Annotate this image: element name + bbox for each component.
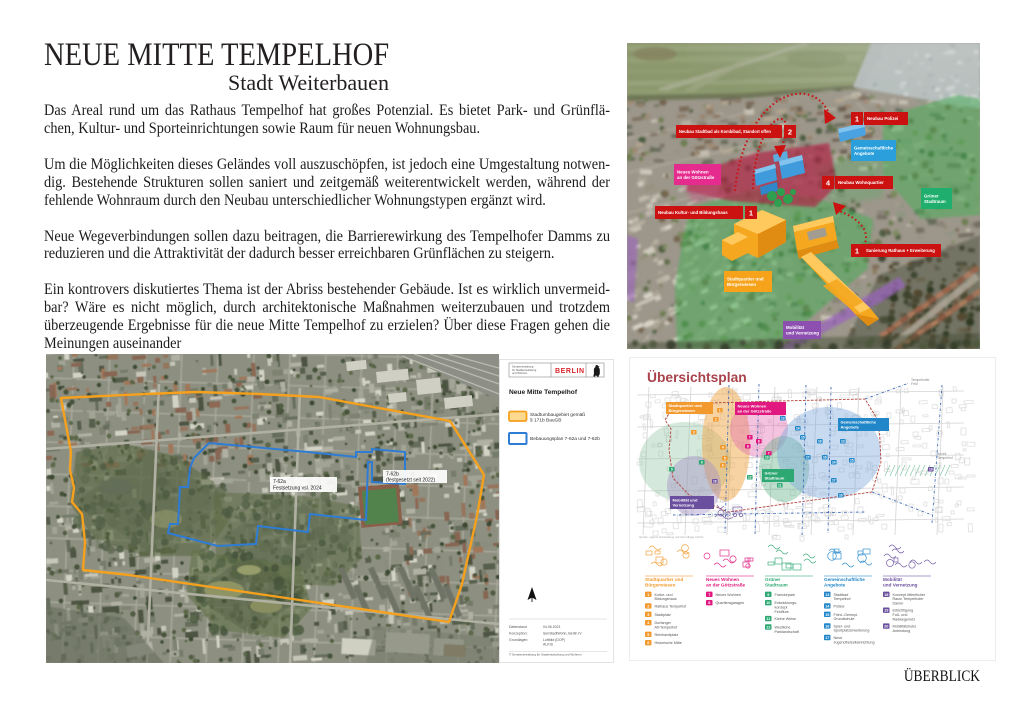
svg-text:2: 2	[715, 418, 717, 422]
svg-text:1: 1	[719, 409, 721, 413]
svg-text:Neubau Wohnquartier: Neubau Wohnquartier	[838, 180, 884, 185]
svg-text:9: 9	[671, 468, 673, 472]
svg-text:5: 5	[724, 457, 726, 461]
svg-text:SenStadtWohn, Berlin IV: SenStadtWohn, Berlin IV	[543, 632, 582, 636]
svg-text:9: 9	[701, 461, 703, 465]
svg-text:Radwegenetz: Radwegenetz	[893, 617, 916, 621]
svg-text:13: 13	[825, 593, 829, 597]
svg-text:Bürgerwiesen: Bürgerwiesen	[669, 408, 696, 413]
svg-text:Bebauungsplan 7-62a und 7-62b: Bebauungsplan 7-62a und 7-62b	[530, 436, 600, 442]
svg-text:Parklandschaft: Parklandschaft	[775, 630, 799, 634]
svg-text:Festsetzung vsl. 2024: Festsetzung vsl. 2024	[273, 486, 322, 492]
svg-text:Stadtraum: Stadtraum	[924, 199, 946, 204]
svg-text:Reinhardtplatz: Reinhardtplatz	[655, 633, 679, 637]
svg-text:7: 7	[749, 436, 751, 440]
svg-text:6: 6	[722, 464, 724, 468]
svg-text:1: 1	[647, 593, 649, 597]
svg-text:Tempelhof: Tempelhof	[834, 597, 852, 601]
svg-text:9: 9	[767, 593, 769, 597]
svg-text:ALKIS: ALKIS	[543, 643, 554, 647]
svg-text:Bildungshaus: Bildungshaus	[655, 597, 677, 601]
svg-text:§ 171b BauGB: § 171b BauGB	[530, 418, 561, 424]
svg-text:Bürgerwiesen: Bürgerwiesen	[645, 582, 676, 587]
svg-text:1: 1	[855, 247, 859, 256]
svg-text:Gemeinschaftliche: Gemeinschaftliche	[854, 145, 894, 150]
svg-text:15: 15	[825, 613, 829, 617]
svg-text:15: 15	[850, 459, 854, 463]
svg-text:19: 19	[929, 468, 933, 472]
svg-text:an der Götzstraße: an der Götzstraße	[738, 409, 773, 414]
svg-text:Gemeinschaftliche: Gemeinschaftliche	[824, 577, 865, 582]
svg-text:Stadtplatz: Stadtplatz	[655, 613, 672, 617]
svg-text:17: 17	[832, 479, 836, 483]
svg-text:und Vernetzung: und Vernetzung	[786, 331, 819, 336]
svg-text:Mobilität: Mobilität	[786, 325, 805, 330]
svg-text:Feldflure: Feldflure	[775, 610, 789, 614]
svg-text:Mobilität: Mobilität	[883, 577, 902, 582]
svg-text:Neubau Stadtbad als Kombibad,: Neubau Stadtbad als Kombibad, Standort o…	[679, 129, 771, 134]
svg-text:8: 8	[708, 601, 710, 605]
svg-text:an der Götzstraße: an der Götzstraße	[677, 175, 715, 180]
svg-text:4: 4	[722, 446, 724, 450]
svg-text:Angebote: Angebote	[854, 151, 875, 156]
svg-text:Damm: Damm	[893, 601, 904, 605]
svg-text:Übersichtsplan: Übersichtsplan	[647, 369, 747, 385]
svg-text:14: 14	[832, 461, 836, 465]
svg-text:14: 14	[796, 427, 800, 431]
svg-text:11: 11	[778, 484, 782, 488]
svg-text:Stadtquartier und: Stadtquartier und	[727, 276, 764, 281]
svg-text:7-62a: 7-62a	[273, 479, 286, 485]
svg-text:Konzeption:: Konzeption:	[509, 632, 528, 636]
svg-text:Kleine Wiese: Kleine Wiese	[775, 617, 797, 621]
svg-text:Feld: Feld	[911, 382, 918, 386]
svg-text:7: 7	[708, 593, 710, 597]
svg-text:Quelle: eigene Darstellung auf: Quelle: eigene Darstellung auf Grundlage…	[639, 535, 703, 539]
svg-text:Jugendfreizeiteinrichtung: Jugendfreizeiteinrichtung	[834, 640, 875, 644]
svg-text:Neubau Polizei: Neubau Polizei	[867, 116, 898, 121]
svg-text:Grüner: Grüner	[765, 577, 781, 582]
svg-text:20: 20	[884, 625, 888, 629]
svg-text:Datenstand: Datenstand	[509, 625, 527, 629]
svg-text:16: 16	[839, 494, 843, 498]
svg-text:Historische Mitte: Historische Mitte	[655, 641, 682, 645]
svg-text:8: 8	[758, 440, 760, 444]
svg-text:an der Götzstraße: an der Götzstraße	[706, 582, 746, 587]
svg-text:Neues Wohnen: Neues Wohnen	[706, 577, 739, 582]
svg-text:3: 3	[647, 613, 649, 617]
svg-text:12: 12	[766, 626, 770, 630]
svg-text:© Senatsverwaltung für Stadten: © Senatsverwaltung für Stadtentwicklung …	[509, 653, 582, 657]
svg-text:Sanierung Rathaus + Erweiterun: Sanierung Rathaus + Erweiterung	[866, 248, 935, 253]
svg-text:12: 12	[748, 476, 752, 480]
svg-text:Grüner: Grüner	[924, 193, 939, 198]
svg-text:16: 16	[823, 456, 827, 460]
svg-text:und Vernetzung: und Vernetzung	[883, 582, 918, 587]
svg-text:17: 17	[825, 636, 829, 640]
svg-text:Alt-Tempelhof: Alt-Tempelhof	[655, 626, 679, 630]
svg-text:(festgesetzt seit 2022): (festgesetzt seit 2022)	[386, 478, 436, 484]
svg-text:Stadtraum: Stadtraum	[765, 582, 788, 587]
svg-text:04.06.2021: 04.06.2021	[543, 625, 561, 629]
svg-text:Neues Wohnen: Neues Wohnen	[716, 593, 741, 597]
svg-text:19: 19	[884, 609, 888, 613]
svg-text:17: 17	[806, 456, 810, 460]
svg-text:Rathaus Tempelhof: Rathaus Tempelhof	[655, 604, 688, 608]
svg-text:und Wohnen: und Wohnen	[512, 371, 528, 375]
svg-text:Bürgerwiesen: Bürgerwiesen	[727, 282, 756, 287]
svg-text:Polizei: Polizei	[834, 604, 845, 608]
svg-text:Neue Mitte Tempelhof: Neue Mitte Tempelhof	[509, 389, 578, 396]
svg-text:15: 15	[801, 436, 805, 440]
svg-text:Sportplatzerweiterung: Sportplatzerweiterung	[834, 629, 870, 633]
svg-text:6: 6	[647, 641, 649, 645]
svg-text:1: 1	[749, 209, 753, 218]
svg-text:5: 5	[647, 633, 649, 637]
svg-text:16: 16	[818, 440, 822, 444]
svg-text:16: 16	[825, 624, 829, 628]
svg-text:10: 10	[766, 601, 770, 605]
svg-text:Quartiersgaragen: Quartiersgaragen	[716, 601, 745, 605]
svg-text:18: 18	[884, 593, 888, 597]
svg-text:2: 2	[647, 604, 649, 608]
svg-text:13: 13	[841, 440, 845, 444]
svg-text:Neues Wohnen: Neues Wohnen	[677, 169, 709, 174]
svg-text:1: 1	[855, 115, 859, 124]
svg-text:Tempelhof: Tempelhof	[937, 456, 953, 460]
svg-text:Stadtumbaugebiet gemäß: Stadtumbaugebiet gemäß	[530, 412, 585, 418]
svg-text:Vernetzung: Vernetzung	[673, 503, 695, 508]
svg-text:Stadtquartier und: Stadtquartier und	[645, 577, 683, 582]
svg-text:BERLIN: BERLIN	[555, 368, 585, 375]
svg-text:Franckepark: Franckepark	[775, 593, 796, 597]
svg-text:Neubau Kultur- und Bildungshau: Neubau Kultur- und Bildungshaus	[658, 210, 728, 215]
svg-text:13: 13	[781, 417, 785, 421]
svg-text:Anbindung: Anbindung	[893, 629, 911, 633]
svg-text:Stadtraum: Stadtraum	[765, 476, 785, 481]
svg-text:8: 8	[747, 445, 749, 449]
svg-text:Grundlagen:: Grundlagen:	[509, 638, 528, 642]
svg-text:Angebote: Angebote	[841, 425, 860, 430]
svg-text:18: 18	[713, 480, 717, 484]
svg-text:Luftbild (DOP): Luftbild (DOP)	[543, 638, 565, 642]
svg-text:10: 10	[765, 456, 769, 460]
svg-text:11: 11	[766, 617, 770, 621]
svg-text:Grundschule: Grundschule	[834, 617, 855, 621]
svg-text:2: 2	[788, 128, 792, 137]
svg-text:Angebote: Angebote	[824, 582, 846, 587]
svg-text:3: 3	[693, 431, 695, 435]
